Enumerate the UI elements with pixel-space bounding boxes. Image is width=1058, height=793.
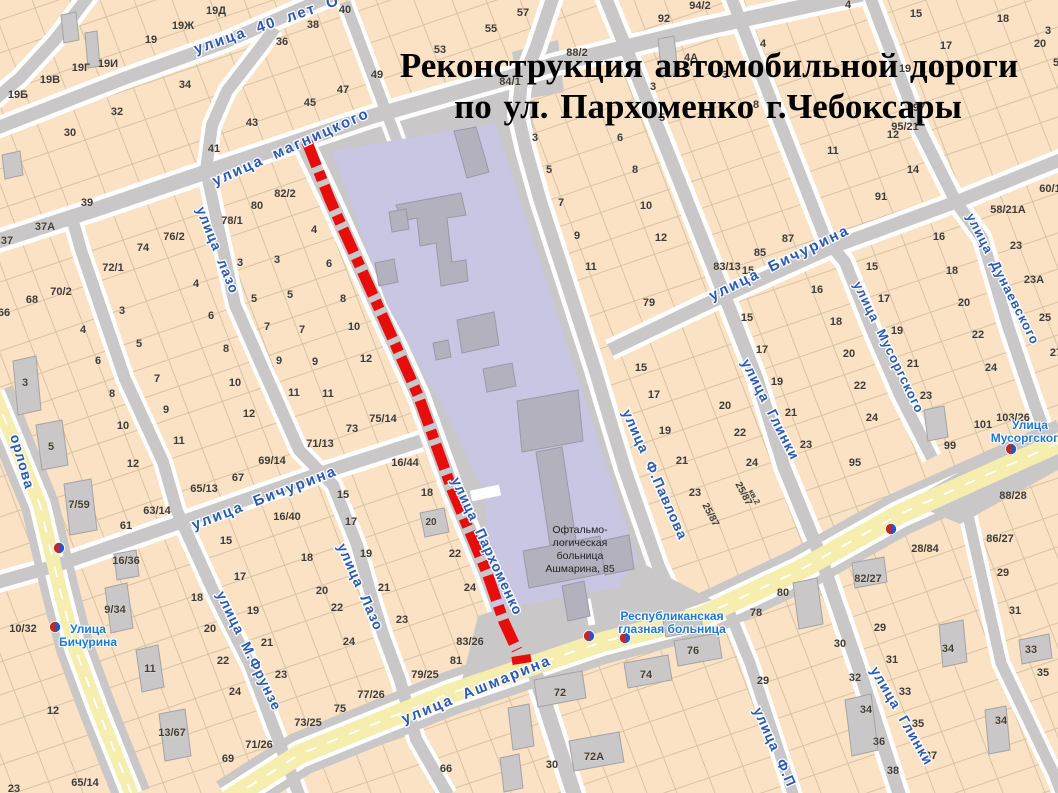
svg-text:37А: 37А bbox=[35, 221, 55, 233]
svg-text:72/1: 72/1 bbox=[102, 262, 123, 274]
svg-text:5: 5 bbox=[287, 289, 293, 301]
svg-text:78/1: 78/1 bbox=[221, 215, 242, 227]
svg-text:87: 87 bbox=[782, 233, 794, 245]
svg-text:16: 16 bbox=[933, 231, 945, 243]
svg-text:12: 12 bbox=[243, 408, 255, 420]
svg-text:83/26: 83/26 bbox=[456, 636, 484, 648]
svg-text:92: 92 bbox=[658, 13, 670, 25]
svg-text:17: 17 bbox=[345, 516, 357, 528]
svg-text:19И: 19И bbox=[98, 58, 118, 70]
svg-text:38: 38 bbox=[887, 765, 899, 777]
svg-text:8: 8 bbox=[632, 164, 638, 176]
svg-text:4: 4 bbox=[311, 224, 318, 236]
svg-text:23А: 23А bbox=[1024, 274, 1044, 286]
svg-text:16/36: 16/36 bbox=[112, 555, 140, 567]
svg-text:34: 34 bbox=[860, 704, 873, 716]
svg-text:17: 17 bbox=[648, 389, 660, 401]
svg-text:логическая: логическая bbox=[553, 537, 608, 549]
svg-text:22: 22 bbox=[734, 427, 746, 439]
svg-text:23: 23 bbox=[1010, 240, 1022, 252]
svg-text:101: 101 bbox=[974, 419, 992, 431]
svg-text:45: 45 bbox=[304, 97, 316, 109]
svg-text:20: 20 bbox=[204, 623, 216, 635]
svg-text:21: 21 bbox=[785, 407, 797, 419]
svg-text:10: 10 bbox=[117, 420, 129, 432]
svg-text:36: 36 bbox=[276, 36, 288, 48]
svg-text:6: 6 bbox=[617, 132, 623, 144]
svg-text:Мусоргского: Мусоргского bbox=[991, 431, 1058, 445]
svg-text:19: 19 bbox=[659, 425, 671, 437]
svg-text:29: 29 bbox=[757, 675, 769, 687]
svg-text:82/2: 82/2 bbox=[274, 188, 295, 200]
svg-text:11: 11 bbox=[585, 261, 597, 273]
svg-text:23: 23 bbox=[275, 669, 287, 681]
svg-text:18: 18 bbox=[997, 13, 1009, 25]
svg-text:88/28: 88/28 bbox=[999, 490, 1027, 502]
svg-text:19: 19 bbox=[891, 325, 903, 337]
svg-text:5: 5 bbox=[136, 338, 142, 350]
svg-text:11: 11 bbox=[827, 145, 839, 157]
svg-text:9: 9 bbox=[574, 230, 580, 242]
svg-text:8: 8 bbox=[340, 293, 346, 305]
svg-text:глазная больница: глазная больница bbox=[618, 622, 726, 636]
svg-text:8: 8 bbox=[109, 388, 115, 400]
svg-text:Улица: Улица bbox=[70, 622, 106, 636]
svg-text:78: 78 bbox=[750, 607, 762, 619]
svg-text:15: 15 bbox=[910, 8, 922, 20]
svg-text:34: 34 bbox=[179, 79, 192, 91]
svg-text:68: 68 bbox=[26, 294, 38, 306]
svg-text:30: 30 bbox=[546, 759, 558, 771]
svg-text:14: 14 bbox=[907, 164, 920, 176]
svg-text:75: 75 bbox=[334, 703, 346, 715]
svg-text:7: 7 bbox=[154, 373, 160, 385]
svg-text:Реконструкция автомобильной до: Реконструкция автомобильной дороги bbox=[400, 46, 1018, 85]
svg-text:6: 6 bbox=[326, 258, 332, 270]
svg-text:9: 9 bbox=[276, 355, 282, 367]
svg-text:3: 3 bbox=[237, 257, 243, 269]
svg-text:91: 91 bbox=[875, 191, 887, 203]
svg-text:Бичурина: Бичурина bbox=[59, 635, 117, 649]
svg-text:80: 80 bbox=[777, 587, 789, 599]
svg-text:30: 30 bbox=[64, 127, 76, 139]
svg-text:5: 5 bbox=[1053, 57, 1058, 69]
svg-text:3: 3 bbox=[1045, 25, 1051, 37]
svg-text:77/26: 77/26 bbox=[357, 689, 385, 701]
svg-text:18: 18 bbox=[301, 552, 313, 564]
svg-text:Улица: Улица bbox=[1012, 418, 1048, 432]
svg-text:17: 17 bbox=[234, 571, 246, 583]
svg-text:5: 5 bbox=[251, 293, 257, 305]
svg-text:20: 20 bbox=[958, 297, 970, 309]
svg-text:23: 23 bbox=[396, 614, 408, 626]
svg-text:17: 17 bbox=[756, 344, 768, 356]
svg-text:79: 79 bbox=[643, 297, 655, 309]
svg-text:19Д: 19Д bbox=[206, 5, 226, 17]
svg-text:21: 21 bbox=[378, 582, 390, 594]
svg-text:28/84: 28/84 bbox=[911, 543, 939, 555]
svg-text:41: 41 bbox=[208, 143, 220, 155]
svg-text:16/40: 16/40 bbox=[273, 511, 301, 523]
svg-text:22: 22 bbox=[217, 655, 229, 667]
svg-text:17: 17 bbox=[878, 293, 890, 305]
svg-text:19Г: 19Г bbox=[72, 62, 91, 74]
svg-text:22: 22 bbox=[449, 548, 461, 560]
svg-text:31: 31 bbox=[1009, 605, 1021, 617]
svg-text:3: 3 bbox=[119, 305, 125, 317]
svg-text:61: 61 bbox=[120, 520, 132, 532]
svg-text:4: 4 bbox=[845, 0, 852, 11]
svg-text:65/14: 65/14 bbox=[71, 777, 99, 789]
svg-text:22: 22 bbox=[331, 602, 343, 614]
svg-text:23: 23 bbox=[689, 487, 701, 499]
svg-text:21: 21 bbox=[261, 637, 273, 649]
svg-text:37: 37 bbox=[1, 235, 13, 247]
svg-text:33: 33 bbox=[1025, 644, 1037, 656]
svg-text:74: 74 bbox=[640, 669, 653, 681]
svg-text:19: 19 bbox=[360, 548, 372, 560]
svg-text:24: 24 bbox=[229, 686, 242, 698]
svg-text:31: 31 bbox=[886, 654, 898, 666]
svg-text:10: 10 bbox=[348, 321, 360, 333]
svg-text:10: 10 bbox=[229, 377, 241, 389]
svg-text:79/25: 79/25 bbox=[411, 669, 439, 681]
svg-text:72А: 72А bbox=[584, 751, 604, 763]
svg-text:9: 9 bbox=[163, 404, 169, 416]
svg-text:81: 81 bbox=[450, 655, 462, 667]
svg-text:58/21А: 58/21А bbox=[990, 204, 1026, 216]
svg-text:Республиканская: Республиканская bbox=[620, 609, 723, 623]
svg-text:9: 9 bbox=[312, 356, 318, 368]
svg-text:больница: больница bbox=[557, 550, 604, 562]
svg-text:74: 74 bbox=[137, 242, 150, 254]
svg-text:99: 99 bbox=[944, 440, 956, 452]
svg-text:38: 38 bbox=[307, 19, 319, 31]
svg-text:76/2: 76/2 bbox=[163, 231, 184, 243]
svg-text:12: 12 bbox=[47, 705, 59, 717]
svg-text:20: 20 bbox=[719, 400, 731, 412]
svg-text:15: 15 bbox=[741, 312, 753, 324]
svg-text:60/1: 60/1 bbox=[1039, 183, 1058, 195]
svg-text:65/13: 65/13 bbox=[190, 483, 218, 495]
svg-text:80: 80 bbox=[251, 200, 263, 212]
svg-text:25: 25 bbox=[1039, 312, 1051, 324]
svg-text:27: 27 bbox=[1050, 347, 1058, 359]
svg-text:43: 43 bbox=[246, 117, 258, 129]
svg-text:83/13: 83/13 bbox=[713, 261, 741, 273]
svg-text:8: 8 bbox=[223, 343, 229, 355]
svg-text:10: 10 bbox=[640, 200, 652, 212]
svg-text:15: 15 bbox=[220, 535, 232, 547]
svg-text:85: 85 bbox=[754, 247, 766, 259]
svg-text:19: 19 bbox=[145, 34, 157, 46]
svg-text:73/25: 73/25 bbox=[294, 717, 322, 729]
svg-text:7: 7 bbox=[264, 321, 270, 333]
svg-text:6: 6 bbox=[95, 355, 101, 367]
svg-text:47: 47 bbox=[337, 84, 349, 96]
svg-text:19В: 19В bbox=[40, 74, 60, 86]
svg-text:18: 18 bbox=[191, 592, 203, 604]
svg-text:20: 20 bbox=[316, 585, 328, 597]
svg-text:19: 19 bbox=[247, 605, 259, 617]
svg-text:19Б: 19Б bbox=[8, 89, 28, 101]
svg-text:32: 32 bbox=[849, 672, 861, 684]
svg-text:19Ж: 19Ж bbox=[172, 20, 194, 32]
svg-text:34: 34 bbox=[942, 643, 955, 655]
svg-text:4: 4 bbox=[193, 278, 200, 290]
svg-text:Ашмарина, 85: Ашмарина, 85 bbox=[545, 563, 615, 575]
svg-text:19: 19 bbox=[771, 376, 783, 388]
svg-text:20: 20 bbox=[1034, 38, 1046, 50]
svg-text:21: 21 bbox=[676, 455, 688, 467]
svg-text:11: 11 bbox=[322, 388, 334, 400]
svg-text:12: 12 bbox=[655, 232, 667, 244]
svg-text:82/27: 82/27 bbox=[854, 573, 882, 585]
svg-text:34: 34 bbox=[995, 715, 1008, 727]
svg-text:55: 55 bbox=[485, 23, 497, 35]
svg-text:73: 73 bbox=[346, 423, 358, 435]
svg-text:29: 29 bbox=[874, 622, 886, 634]
svg-text:49: 49 bbox=[371, 69, 383, 81]
svg-text:15: 15 bbox=[866, 261, 878, 273]
svg-text:20: 20 bbox=[425, 517, 437, 528]
svg-text:36: 36 bbox=[873, 736, 885, 748]
svg-text:69: 69 bbox=[222, 753, 234, 765]
svg-text:75/14: 75/14 bbox=[369, 413, 397, 425]
svg-text:71/13: 71/13 bbox=[306, 438, 334, 450]
svg-text:6: 6 bbox=[208, 310, 214, 322]
svg-text:12: 12 bbox=[360, 353, 372, 365]
svg-text:по ул. Пархоменко г.Чебоксары: по ул. Пархоменко г.Чебоксары bbox=[454, 87, 962, 126]
svg-text:24: 24 bbox=[343, 636, 356, 648]
svg-text:11: 11 bbox=[144, 663, 156, 675]
svg-text:15: 15 bbox=[635, 362, 647, 374]
svg-text:66: 66 bbox=[0, 307, 10, 319]
svg-text:71/26: 71/26 bbox=[245, 739, 273, 751]
svg-text:7: 7 bbox=[299, 324, 305, 336]
svg-text:76: 76 bbox=[687, 645, 699, 657]
svg-text:32: 32 bbox=[111, 106, 123, 118]
svg-text:15: 15 bbox=[337, 489, 349, 501]
svg-text:18: 18 bbox=[946, 265, 958, 277]
svg-text:30: 30 bbox=[834, 638, 846, 650]
svg-text:11: 11 bbox=[288, 387, 300, 399]
svg-text:24: 24 bbox=[746, 457, 759, 469]
svg-text:3: 3 bbox=[274, 254, 280, 266]
svg-text:39: 39 bbox=[81, 197, 93, 209]
svg-text:24: 24 bbox=[866, 412, 879, 424]
svg-text:9/34: 9/34 bbox=[104, 604, 126, 616]
svg-text:21: 21 bbox=[907, 358, 919, 370]
svg-text:66: 66 bbox=[440, 763, 452, 775]
svg-text:69/14: 69/14 bbox=[258, 455, 286, 467]
svg-text:22: 22 bbox=[972, 329, 984, 341]
svg-text:3: 3 bbox=[22, 377, 28, 389]
svg-text:29: 29 bbox=[997, 567, 1009, 579]
svg-text:35: 35 bbox=[1037, 667, 1049, 679]
svg-text:24: 24 bbox=[985, 362, 998, 374]
svg-text:3: 3 bbox=[532, 132, 538, 144]
svg-text:20: 20 bbox=[843, 348, 855, 360]
svg-text:18: 18 bbox=[830, 316, 842, 328]
svg-text:7: 7 bbox=[558, 197, 564, 209]
svg-text:22: 22 bbox=[854, 380, 866, 392]
svg-text:23: 23 bbox=[8, 783, 20, 793]
svg-text:13/67: 13/67 bbox=[158, 727, 186, 739]
svg-text:7/59: 7/59 bbox=[68, 499, 89, 511]
svg-text:63/14: 63/14 bbox=[143, 505, 171, 517]
svg-text:5: 5 bbox=[546, 164, 552, 176]
svg-text:57: 57 bbox=[517, 7, 529, 19]
svg-text:24: 24 bbox=[464, 582, 477, 594]
svg-text:18: 18 bbox=[421, 487, 433, 499]
svg-text:5: 5 bbox=[48, 441, 54, 453]
svg-text:4: 4 bbox=[80, 324, 87, 336]
svg-text:86/27: 86/27 bbox=[986, 533, 1014, 545]
svg-text:16: 16 bbox=[811, 284, 823, 296]
svg-text:23: 23 bbox=[800, 439, 812, 451]
svg-text:95: 95 bbox=[849, 457, 861, 469]
svg-text:16/44: 16/44 bbox=[391, 457, 419, 469]
svg-text:12: 12 bbox=[127, 458, 139, 470]
svg-text:94/2: 94/2 bbox=[689, 0, 710, 12]
svg-text:72: 72 bbox=[554, 687, 566, 699]
svg-text:70/2: 70/2 bbox=[50, 286, 71, 298]
svg-text:67: 67 bbox=[232, 472, 244, 484]
svg-text:11: 11 bbox=[173, 435, 185, 447]
svg-text:Офтальмо-: Офтальмо- bbox=[552, 524, 608, 536]
svg-text:10/32: 10/32 bbox=[9, 623, 37, 635]
